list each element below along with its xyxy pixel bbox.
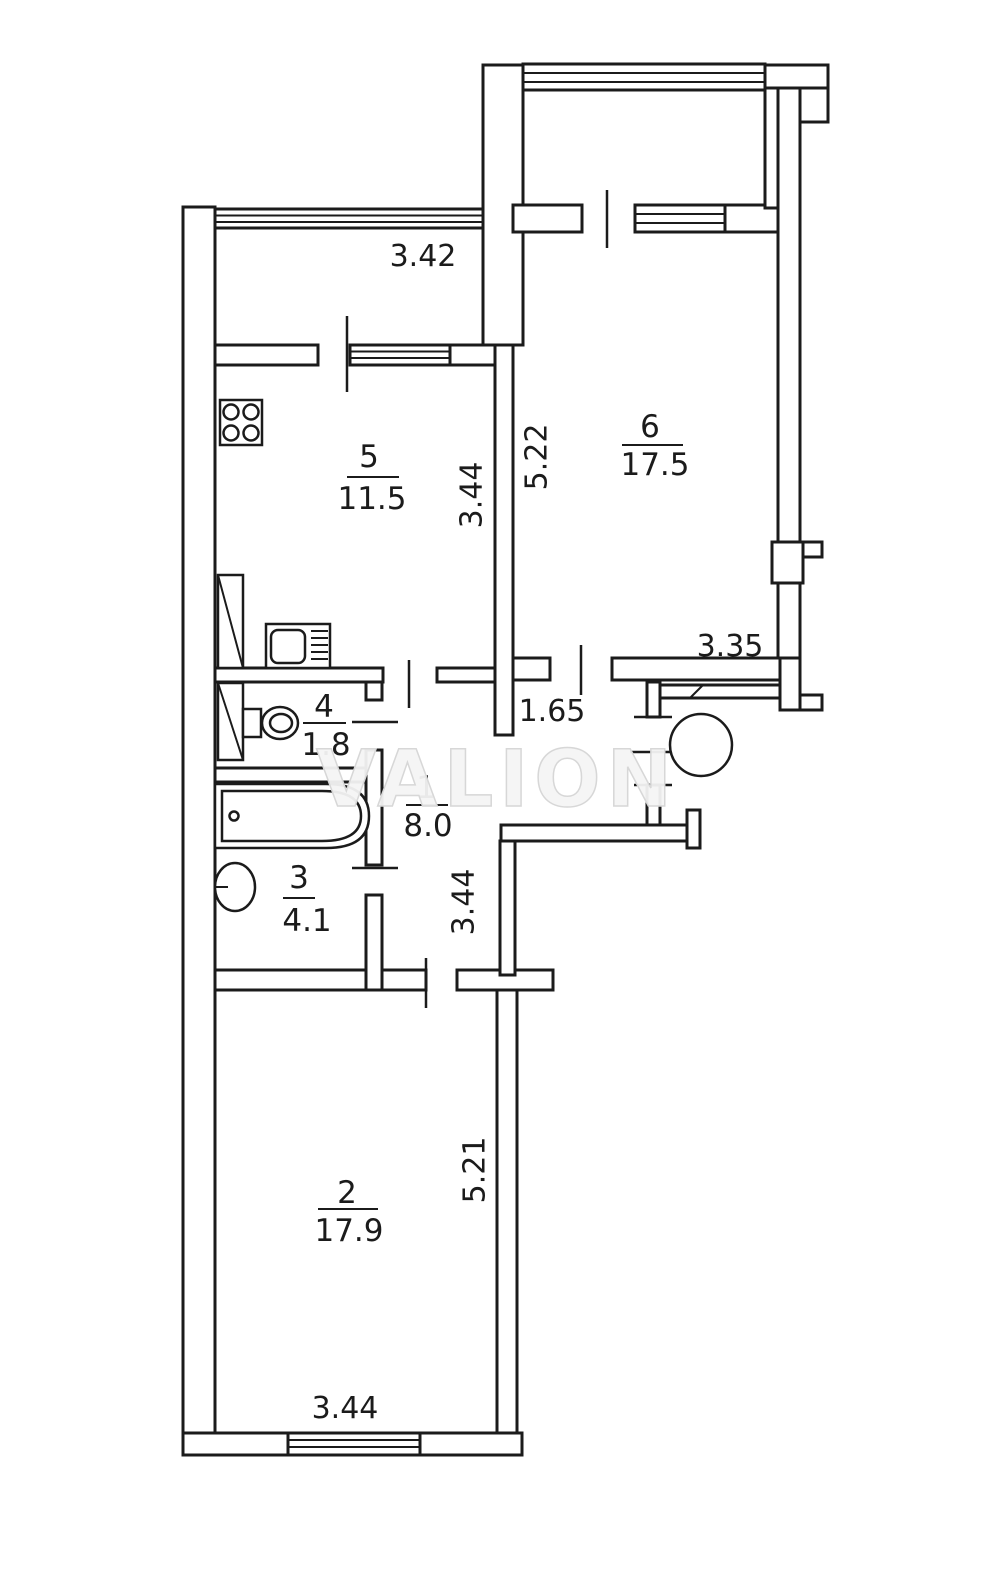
floor-plan-page: 1 8.0 2 17.9 3 4.1 4 1.8 5 11.5 6 17.5 bbox=[0, 0, 1000, 1573]
wall-vestibule-south bbox=[501, 825, 697, 841]
stove-icon bbox=[220, 400, 262, 445]
dim-room2-depth: 5.21 bbox=[458, 1137, 493, 1204]
wall-balcony-pillar bbox=[765, 65, 828, 90]
kitchen-sink-icon bbox=[266, 624, 330, 668]
vent-shaft-wc-icon bbox=[218, 683, 243, 760]
room-label-2: 2 17.9 bbox=[314, 1175, 383, 1249]
dim-kitchen-depth: 3.44 bbox=[455, 462, 490, 529]
window-room2 bbox=[288, 1433, 420, 1455]
room6-number: 6 bbox=[640, 409, 660, 445]
room2-area: 17.9 bbox=[314, 1213, 383, 1249]
wall-kitchen-bottom-left bbox=[215, 668, 383, 682]
garbage-chute-icon bbox=[670, 714, 732, 776]
wall-balcony-pillar-foot bbox=[800, 88, 828, 122]
dim-kitchen-balcony-width: 3.42 bbox=[390, 239, 457, 274]
vent-shaft-kitchen-icon bbox=[218, 575, 243, 668]
wall-vestibule-cap bbox=[687, 810, 700, 848]
room2-number: 2 bbox=[337, 1175, 357, 1211]
room4-number: 4 bbox=[314, 689, 334, 725]
dim-room6-depth: 5.22 bbox=[520, 424, 555, 491]
room5-number: 5 bbox=[359, 439, 379, 475]
wall-exterior-left bbox=[183, 207, 215, 1455]
room3-number: 3 bbox=[289, 860, 309, 896]
room-label-5: 5 11.5 bbox=[337, 439, 406, 517]
wall-hall-right-lower bbox=[500, 841, 515, 975]
wall-room2-right bbox=[497, 975, 517, 1433]
wall-kitchen-right bbox=[495, 345, 513, 735]
room-label-6: 6 17.5 bbox=[620, 409, 689, 483]
wall-right-notch-b bbox=[772, 542, 803, 583]
wall-stairwell-band bbox=[660, 685, 780, 698]
window-kitchen bbox=[350, 345, 450, 365]
wall-room6-top-left bbox=[513, 205, 582, 232]
window-room6 bbox=[635, 205, 725, 232]
wall-hall-left-c bbox=[366, 895, 382, 990]
wall-stairwell-step bbox=[800, 695, 822, 710]
toilet-icon bbox=[243, 707, 298, 739]
room5-area: 11.5 bbox=[337, 481, 406, 517]
dim-hallway-depth: 3.44 bbox=[447, 869, 482, 936]
wall-stairwell-right bbox=[780, 658, 800, 710]
dim-room2-width: 3.44 bbox=[312, 1391, 379, 1426]
window-balcony-kitchen bbox=[215, 209, 483, 228]
wall-room6-bottom-left bbox=[513, 658, 550, 680]
floor-plan-drawing: 1 8.0 2 17.9 3 4.1 4 1.8 5 11.5 6 17.5 bbox=[0, 0, 1000, 1573]
wall-kitchen-top-left bbox=[215, 345, 318, 365]
dim-vestibule-width: 1.65 bbox=[519, 694, 586, 729]
watermark: VALION bbox=[316, 735, 678, 825]
window-balcony-room6 bbox=[523, 64, 765, 90]
dim-room6-width: 3.35 bbox=[697, 629, 764, 664]
wall-room2-top-left bbox=[215, 970, 426, 990]
room3-area: 4.1 bbox=[282, 903, 331, 939]
room6-area: 17.5 bbox=[620, 447, 689, 483]
wall-entrance-top bbox=[647, 682, 660, 717]
room-label-3: 3 4.1 bbox=[282, 860, 331, 939]
washbasin-icon bbox=[215, 863, 255, 911]
